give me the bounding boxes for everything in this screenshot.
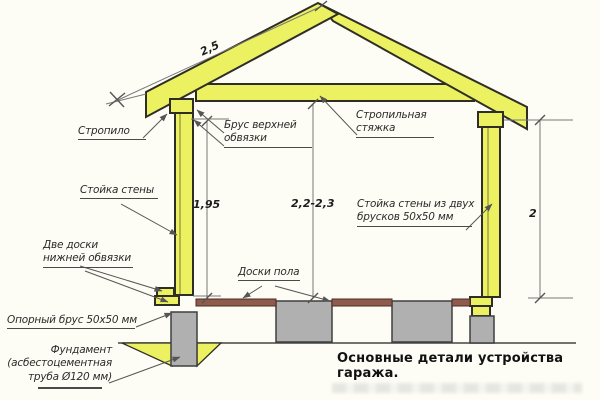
label-top-beam-line2: обвязки — [224, 132, 312, 145]
garage-diagram: Стропило Брус верхней обвязки Стропильна… — [0, 0, 600, 400]
lower-strap-right-1 — [470, 297, 492, 306]
floor-board-1 — [196, 299, 276, 306]
label-tie: Стропильная стяжка — [356, 109, 434, 138]
top-beam-block-left — [170, 99, 193, 113]
label-top-beam: Брус верхней обвязки — [224, 119, 312, 148]
label-wall-post: Стойка стены — [80, 184, 158, 199]
floor-board-2 — [332, 299, 392, 306]
label-foundation-line2: (асбестоцементная — [0, 357, 112, 370]
lower-strap-left-1 — [157, 288, 174, 296]
faded-watermark — [332, 383, 582, 393]
label-support-beam: Опорный брус 50х50 мм — [7, 314, 135, 329]
lower-strap-left-2 — [155, 296, 179, 305]
label-rafter: Стропило — [78, 125, 146, 140]
label-foundation-line1: Фундамент — [0, 344, 112, 357]
label-double-post-line1: Стойка стены из двух — [357, 198, 472, 211]
label-double-post-line2: брусков 50х50 мм — [357, 211, 472, 224]
top-beam-block-right — [478, 112, 503, 127]
label-foundation-line3: труба Ø120 мм) — [0, 371, 112, 384]
floor-pier-1 — [276, 301, 332, 342]
label-double-post: Стойка стены из двух брусков 50х50 мм — [357, 198, 472, 227]
dim-left-wall: 1,95 — [193, 198, 220, 211]
floor-board-3 — [452, 299, 470, 306]
label-foundation: Фундамент (асбестоцементная труба Ø120 м… — [0, 344, 112, 384]
label-lower-strap-line1: Две доски — [43, 239, 133, 252]
wall-post-left — [175, 113, 193, 295]
dim-interior-height: 2,2-2,3 — [291, 197, 335, 210]
foundation-pipe — [171, 312, 197, 366]
label-lower-strap-line2: нижней обвязки — [43, 252, 133, 265]
label-lower-strap: Две доски нижней обвязки — [43, 239, 133, 268]
diagram-caption: Основные детали устройства гаража. — [337, 351, 600, 381]
lower-strap-right-2 — [472, 306, 490, 316]
dim-right-wall: 2 — [529, 207, 537, 220]
foundation-block-right — [470, 316, 494, 343]
label-tie-line1: Стропильная — [356, 109, 434, 122]
label-tie-line2: стяжка — [356, 122, 434, 135]
tie-beam — [196, 84, 474, 101]
foundation-underline — [38, 387, 102, 389]
label-floor-boards: Доски пола — [238, 266, 300, 281]
label-top-beam-line1: Брус верхней — [224, 119, 312, 132]
floor-pier-2 — [392, 301, 452, 342]
backfill-wedge-right — [197, 343, 221, 366]
